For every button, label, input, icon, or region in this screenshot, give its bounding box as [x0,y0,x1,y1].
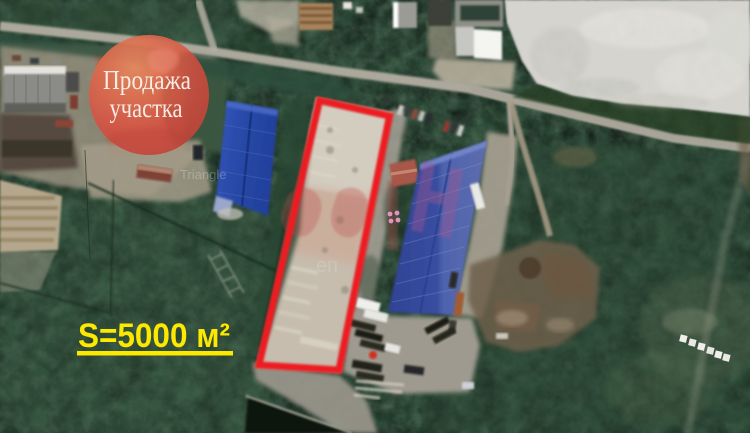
svg-text:Продажа: Продажа [103,65,191,95]
svg-text:еп: еп [316,255,338,277]
svg-text:участка: участка [110,93,183,123]
svg-text:S=5000 м²: S=5000 м² [78,317,230,355]
svg-text:Triangle: Triangle [180,167,226,182]
